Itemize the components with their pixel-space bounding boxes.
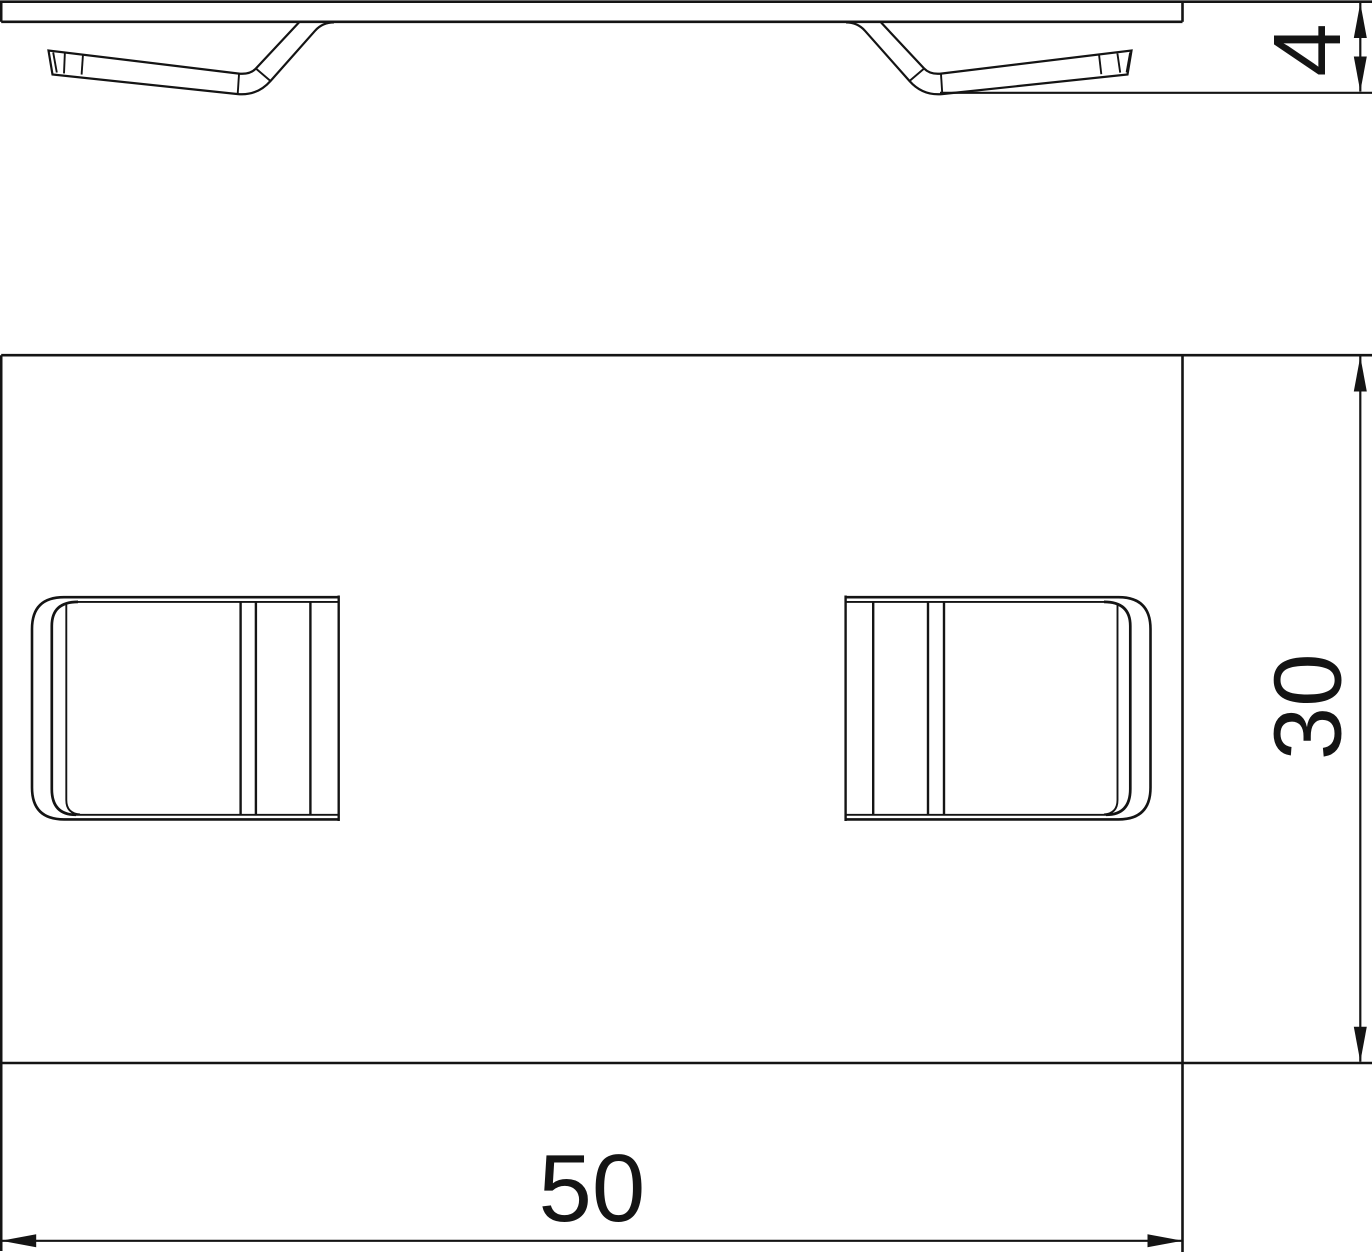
svg-text:4: 4 [1254, 23, 1361, 76]
svg-text:50: 50 [539, 1135, 646, 1242]
svg-text:30: 30 [1254, 653, 1361, 760]
